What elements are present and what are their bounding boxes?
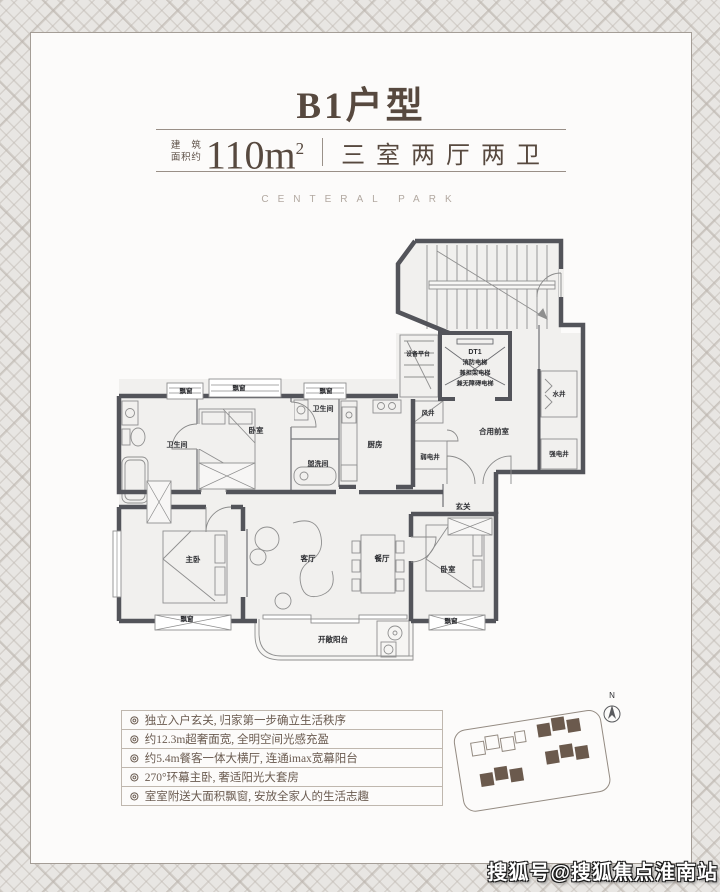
compass-label: N bbox=[609, 691, 615, 700]
layout-text: 三室两厅两卫 bbox=[341, 135, 551, 170]
room-label: 盥洗间 bbox=[308, 459, 329, 468]
feature-bullet-icon: ◎ bbox=[130, 772, 139, 783]
feature-text: 约5.4m餐客一体大横厅, 连通imax宽幕阳台 bbox=[145, 750, 358, 766]
feature-row: ◎约5.4m餐客一体大横厅, 连通imax宽幕阳台 bbox=[121, 748, 443, 768]
feature-bullet-icon: ◎ bbox=[130, 734, 139, 745]
floor-fill bbox=[119, 241, 583, 660]
floorplan-drawing: DT1消防电梯兼担架电梯兼无障碍电梯 设备平台水井合用前室强电井风井弱电井厨房卫… bbox=[111, 229, 611, 669]
brand-subtitle: CENTERAL PARK bbox=[31, 194, 691, 205]
room-label: 设备平台 bbox=[406, 350, 430, 358]
feature-row: ◎约12.3m超奢面宽, 全明空间光感充盈 bbox=[121, 729, 443, 749]
divider-bottom bbox=[156, 171, 566, 172]
building-outline bbox=[470, 731, 527, 756]
room-label: 飘窗 bbox=[320, 386, 334, 395]
feature-list: ◎独立入户玄关, 归家第一步确立生活秩序◎约12.3m超奢面宽, 全明空间光感充… bbox=[121, 711, 443, 806]
feature-bullet-icon: ◎ bbox=[130, 715, 139, 726]
compass-icon: N bbox=[604, 691, 620, 722]
room-label: 飘窗 bbox=[233, 383, 247, 392]
room-label: 厨房 bbox=[368, 439, 383, 449]
room-label: 卫生间 bbox=[167, 440, 188, 449]
room-label: 开敞阳台 bbox=[318, 634, 348, 644]
elevator-label: DT1 bbox=[468, 349, 481, 356]
room-label: 水井 bbox=[553, 389, 567, 398]
room-label: 强电井 bbox=[549, 449, 569, 458]
elevator-label: 兼无障碍电梯 bbox=[456, 380, 494, 388]
elevator-label: 消防电梯 bbox=[463, 359, 489, 367]
room-label: 弱电井 bbox=[420, 452, 440, 461]
room-label: 餐厅 bbox=[374, 553, 390, 563]
room-label: 卧室 bbox=[441, 564, 456, 574]
feature-text: 独立入户玄关, 归家第一步确立生活秩序 bbox=[145, 712, 346, 728]
feature-row: ◎270°环幕主卧, 奢适阳光大套房 bbox=[121, 767, 443, 787]
feature-text: 270°环幕主卧, 奢适阳光大套房 bbox=[145, 769, 299, 785]
elevator-label: 兼担架电梯 bbox=[460, 369, 492, 377]
room-label: 玄关 bbox=[456, 501, 471, 511]
area-value: 110m2 bbox=[206, 129, 304, 175]
feature-row: ◎独立入户玄关, 归家第一步确立生活秩序 bbox=[121, 710, 443, 730]
room-label: 飘窗 bbox=[180, 386, 194, 395]
floorplan-card: B1户型 建筑 面积约 110m2 三室两厅两卫 CENTERAL PARK bbox=[30, 32, 692, 864]
page-title: B1户型 bbox=[31, 75, 691, 129]
feature-row: ◎室室附送大面积飘窗, 安放全家人的生活志趣 bbox=[121, 786, 443, 806]
room-label: 飘窗 bbox=[181, 614, 195, 623]
room-label: 客厅 bbox=[300, 553, 316, 563]
feature-bullet-icon: ◎ bbox=[130, 753, 139, 764]
area-label-line2: 面积约 bbox=[171, 152, 201, 164]
site-map: N bbox=[446, 688, 631, 833]
feature-text: 室室附送大面积飘窗, 安放全家人的生活志趣 bbox=[145, 788, 369, 804]
room-label: 卧室 bbox=[249, 425, 264, 435]
area-label-line1: 建筑 bbox=[171, 140, 201, 152]
building-filled bbox=[473, 713, 592, 787]
room-label: 合用前室 bbox=[479, 426, 509, 436]
feature-bullet-icon: ◎ bbox=[130, 791, 139, 802]
feature-text: 约12.3m超奢面宽, 全明空间光感充盈 bbox=[145, 731, 329, 747]
room-label: 风井 bbox=[422, 408, 436, 417]
room-label: 卫生间 bbox=[313, 404, 334, 413]
area-label: 建筑 面积约 bbox=[171, 140, 201, 164]
watermark: 搜狐号@搜狐焦点淮南站 bbox=[487, 856, 718, 885]
spec-row: 建筑 面积约 110m2 三室两厅两卫 bbox=[31, 132, 691, 172]
spec-divider bbox=[322, 138, 323, 166]
room-label: 主卧 bbox=[186, 554, 201, 564]
page: B1户型 建筑 面积约 110m2 三室两厅两卫 CENTERAL PARK bbox=[0, 0, 720, 892]
room-label: 飘窗 bbox=[445, 616, 459, 625]
